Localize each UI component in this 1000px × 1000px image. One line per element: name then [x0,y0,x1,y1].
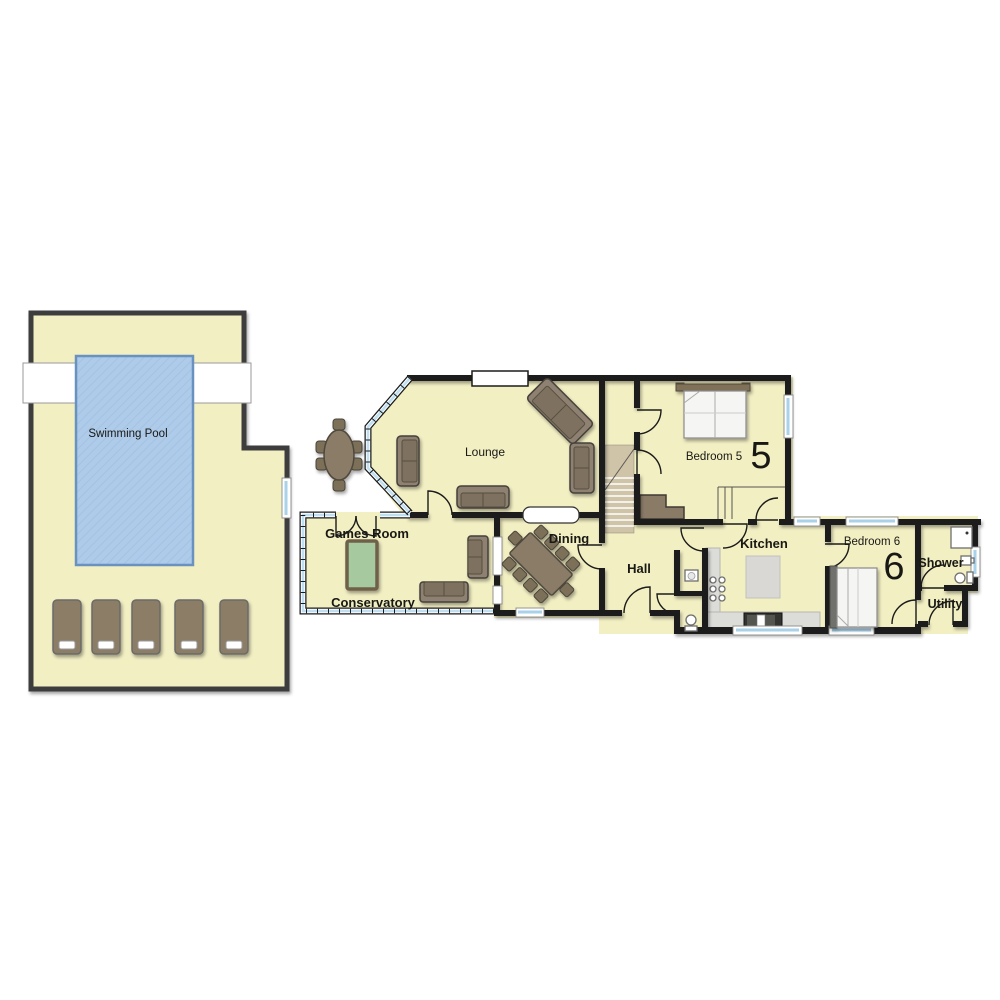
double-door-opening [523,507,579,523]
floor-plan-page: Swimming Pool [0,0,1000,1000]
bedroom5-window [784,395,793,438]
swimming-pool [76,356,193,565]
main-house: Lounge Games Room Conservatory Dining Ha… [300,371,981,635]
room-label-swimming-pool: Swimming Pool [88,428,167,440]
dining-window [516,608,544,617]
lounger-icon [220,600,248,654]
lounge-window [472,371,528,386]
sofa-icon [457,486,509,508]
room-label-dining: Dining [549,531,589,546]
room-label-bedroom-5: Bedroom 5 [686,451,742,463]
toilet-icon [685,615,697,631]
bedroom6-top-window [846,517,898,526]
sofa-icon [397,436,419,486]
conservatory-dining-window [493,586,502,604]
room-label-kitchen: Kitchen [740,536,788,551]
room-number-5: 5 [750,435,771,477]
room-label-lounge: Lounge [465,445,505,459]
sofa-icon [570,443,594,493]
double-bed-icon [830,566,877,628]
lounger-icon [175,600,203,654]
double-bed-icon [676,383,750,438]
sofa-icon [420,582,468,602]
room-label-games-room: Games Room [325,526,409,541]
room-number-6: 6 [883,546,904,588]
kitchen-top-window [794,517,820,526]
lounger-icon [132,600,160,654]
shower-cubicle-icon [951,527,972,548]
room-label-conservatory: Conservatory [331,595,416,610]
room-label-hall: Hall [627,561,651,576]
floor-plan: Swimming Pool [0,0,1000,1000]
sink-icon [685,570,698,581]
room-label-shower: Shower [918,556,963,570]
lounger-icon [53,600,81,654]
games-table-icon [347,541,377,589]
kitchen-island [746,556,780,598]
room-label-utility: Utility [928,597,963,611]
pool-house: Swimming Pool [23,313,291,689]
kitchen-bottom-window [733,626,802,635]
pool-water-texture [76,356,193,565]
lounger-icon [92,600,120,654]
pool-house-side-window [282,478,291,518]
patio-table-icon [316,419,362,491]
sofa-icon [468,536,488,578]
conservatory-dining-window [493,537,502,575]
